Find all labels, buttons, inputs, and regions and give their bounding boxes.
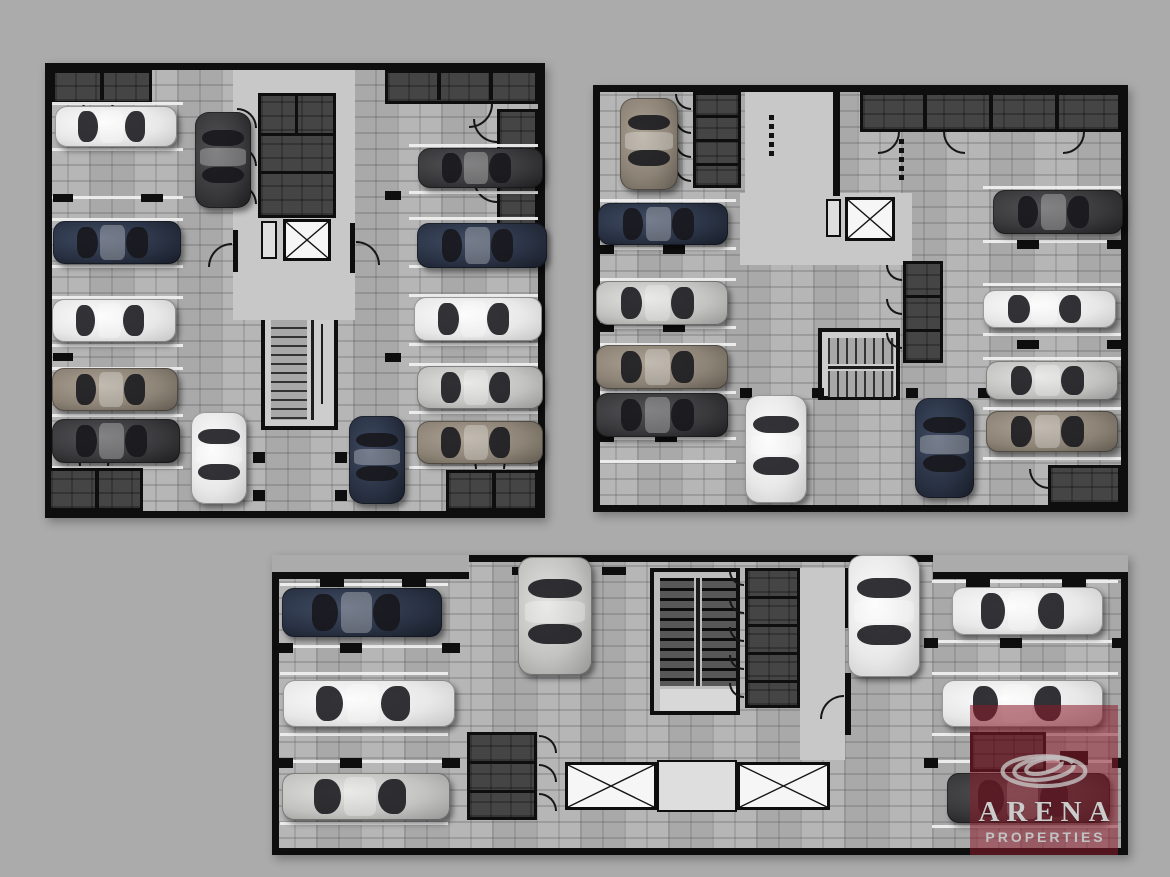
partition-wall	[903, 295, 943, 298]
door-arc	[539, 793, 557, 811]
wall-stub	[442, 643, 460, 653]
door-arc	[1029, 469, 1049, 489]
stall-line	[280, 672, 448, 675]
wall	[845, 673, 851, 735]
car-rear-glass	[1018, 196, 1039, 229]
partition-wall	[467, 790, 537, 793]
car-windshield	[923, 455, 967, 472]
car-rear-glass	[312, 594, 338, 630]
car-roof	[751, 435, 802, 456]
car-rear-glass	[857, 578, 910, 598]
wall-stub	[663, 245, 685, 254]
car-rear-glass	[438, 303, 458, 336]
watermark-title: ARENA	[978, 798, 1116, 827]
car-roof	[464, 152, 488, 185]
car-roof	[465, 227, 490, 264]
elevator-shaft	[261, 221, 277, 259]
stair-landing	[660, 689, 736, 711]
car-windshield	[672, 208, 694, 239]
door-arc	[356, 241, 380, 265]
car-rear-glass	[528, 579, 583, 598]
car-rear-glass	[628, 115, 671, 130]
wall-stub	[1107, 340, 1121, 349]
partition-wall	[1055, 92, 1059, 132]
car-roof	[464, 425, 488, 460]
stall-line	[409, 411, 538, 414]
wall-stub	[1112, 638, 1122, 648]
wall-stub	[966, 579, 990, 587]
car-rear-glass	[621, 351, 642, 384]
wall	[233, 230, 238, 272]
car-rear-glass	[441, 372, 461, 404]
wall-stub	[442, 758, 460, 768]
door-arc	[886, 299, 902, 315]
storage-room	[1048, 465, 1121, 505]
car-white	[983, 290, 1116, 328]
car-windshield	[356, 466, 397, 481]
car-white	[55, 106, 177, 147]
car-navy	[915, 398, 974, 498]
watermark-subtitle: PROPERTIES	[985, 827, 1105, 848]
car-white	[414, 297, 542, 341]
car-windshield	[1038, 593, 1064, 629]
elevator	[283, 219, 331, 261]
stall-line	[983, 283, 1121, 286]
car-rear-glass	[356, 433, 397, 447]
wall	[350, 223, 355, 273]
door-arc	[539, 764, 557, 782]
car-roof	[645, 349, 670, 385]
car-roof	[200, 148, 246, 166]
car-windshield	[378, 779, 407, 814]
wall-stub	[253, 490, 265, 501]
elevator	[845, 197, 895, 241]
car-roof	[645, 285, 670, 321]
car-rear-glass	[441, 427, 461, 459]
wall-stub	[1062, 579, 1086, 587]
partition-wall	[693, 163, 741, 166]
stairwell	[650, 568, 740, 715]
car-windshield	[1059, 295, 1082, 323]
stall-line	[52, 414, 183, 417]
partition-wall	[989, 92, 993, 132]
wall-stub	[1107, 240, 1121, 249]
door-arc	[539, 735, 557, 753]
car-rear-glass	[78, 111, 98, 141]
stall-line	[409, 191, 538, 194]
elevator	[565, 762, 657, 810]
car-rear-glass	[923, 417, 967, 433]
partition-wall	[100, 70, 104, 100]
car-roof	[854, 600, 913, 623]
wall-stub	[402, 579, 426, 587]
car-windshield	[489, 427, 510, 459]
partition-wall	[437, 70, 441, 100]
stall-line	[932, 672, 1118, 675]
wall-stub	[812, 388, 824, 398]
door-arc	[886, 265, 902, 281]
car-charcoal	[596, 393, 728, 437]
stall-line	[600, 460, 736, 463]
car-roof	[99, 423, 123, 459]
stall-line	[409, 217, 538, 220]
car-rear-glass	[76, 425, 96, 458]
stall-line	[600, 199, 736, 202]
elevator-lobby	[657, 760, 737, 812]
car-windshield	[373, 594, 400, 630]
wall-stub	[253, 452, 265, 463]
stair-treads	[828, 338, 894, 364]
plan-top-step	[272, 555, 469, 579]
car-roof	[625, 132, 673, 149]
wall-stub	[340, 758, 362, 768]
car-roof	[1035, 365, 1060, 397]
car-charcoal	[195, 112, 251, 208]
car-navy	[282, 588, 442, 637]
car-roof	[347, 684, 380, 723]
car-roof	[1008, 591, 1037, 630]
car-taupe	[52, 368, 178, 411]
car-roof	[464, 370, 488, 405]
car-rear-glass	[1011, 416, 1032, 446]
partition-wall	[693, 139, 741, 142]
car-windshield	[1061, 416, 1083, 446]
car-windshield	[126, 227, 148, 259]
car-silver	[986, 361, 1118, 400]
car-roof	[461, 301, 485, 337]
car-windshield	[753, 457, 799, 475]
car-silver	[596, 281, 728, 325]
car-roof	[99, 372, 123, 407]
car-rear-glass	[623, 208, 644, 239]
car-windshield	[671, 351, 693, 384]
partition-wall	[745, 596, 800, 599]
car-roof	[100, 110, 123, 144]
car-white	[745, 395, 807, 503]
wall-stub	[1017, 340, 1039, 349]
partition-wall	[745, 652, 800, 655]
car-windshield	[202, 167, 243, 183]
car-navy	[417, 223, 547, 268]
partition-wall	[492, 470, 496, 511]
stall-line	[409, 144, 538, 147]
car-windshield	[487, 303, 509, 336]
stall-line	[932, 580, 1118, 583]
wall-stub	[320, 579, 344, 587]
car-windshield	[123, 305, 144, 337]
car-windshield	[125, 111, 146, 141]
car-white	[52, 299, 176, 342]
car-rear-glass	[198, 429, 239, 444]
stall-line	[280, 760, 448, 763]
partition-wall	[923, 92, 927, 132]
car-white	[952, 587, 1103, 635]
car-rear-glass	[1008, 295, 1029, 323]
car-rear-glass	[76, 374, 96, 406]
car-roof	[354, 449, 400, 466]
car-windshield	[491, 229, 513, 262]
wall-stub	[53, 353, 73, 361]
wall-stub	[141, 194, 163, 202]
car-taupe	[620, 98, 678, 190]
car-windshield	[125, 425, 147, 458]
car-windshield	[1067, 196, 1089, 229]
stall-line	[983, 407, 1121, 410]
car-roof	[920, 435, 968, 454]
car-roof	[341, 592, 371, 632]
wall-stub	[1000, 638, 1022, 648]
car-rear-glass	[316, 686, 344, 721]
car-windshield	[671, 287, 693, 320]
car-taupe	[986, 411, 1118, 452]
car-silver	[282, 773, 450, 820]
wall-stub	[385, 191, 401, 200]
car-rear-glass	[77, 227, 97, 259]
car-windshield	[489, 372, 510, 404]
car-charcoal	[52, 419, 180, 463]
car-rear-glass	[621, 287, 642, 320]
partition-wall	[745, 680, 800, 683]
parking-plan-top-left	[45, 63, 545, 518]
stall-line	[983, 457, 1121, 460]
car-rear-glass	[981, 593, 1005, 629]
car-roof	[645, 397, 670, 433]
partition-wall	[693, 115, 741, 118]
wall-stub	[340, 643, 362, 653]
car-roof	[196, 446, 242, 463]
door-arc	[943, 132, 965, 154]
wall-stub	[279, 758, 293, 768]
car-silver	[417, 366, 543, 409]
wall-stub	[335, 452, 347, 463]
stair-rail	[696, 578, 700, 686]
stall-line	[983, 240, 1121, 243]
stair-treads	[828, 371, 894, 397]
car-rear-glass	[202, 130, 243, 145]
partition-wall	[258, 133, 336, 136]
car-rear-glass	[753, 416, 799, 433]
car-rear-glass	[1011, 366, 1032, 395]
stall-line	[409, 343, 538, 346]
car-rear-glass	[442, 229, 463, 262]
door-arc	[473, 119, 497, 143]
door-arc	[878, 132, 900, 154]
stall-line	[932, 640, 1118, 643]
partition-wall	[745, 624, 800, 627]
stall-line	[280, 822, 448, 825]
partition-wall	[295, 93, 298, 133]
arena-logo-icon	[992, 738, 1096, 796]
partition-wall	[258, 171, 336, 174]
stall-line	[52, 265, 183, 268]
car-rear-glass	[76, 305, 96, 337]
stall-line	[280, 645, 448, 648]
storage-room	[467, 732, 537, 820]
car-charcoal	[993, 190, 1123, 234]
car-roof	[1032, 293, 1057, 324]
wall-stub	[924, 638, 938, 648]
car-windshield	[528, 624, 583, 644]
car-white	[283, 680, 455, 727]
car-roof	[646, 207, 671, 241]
car-windshield	[381, 686, 410, 721]
parking-plan-top-right	[593, 85, 1128, 512]
car-roof	[1041, 194, 1066, 230]
stair-rail	[311, 318, 314, 420]
partition-wall	[467, 761, 537, 764]
floor-plan-canvas: ARENA PROPERTIES	[0, 0, 1170, 877]
wall-stub	[924, 758, 938, 768]
car-charcoal	[418, 148, 543, 188]
car-windshield	[489, 153, 510, 183]
car-roof	[1035, 415, 1060, 449]
watermark-overlay: ARENA PROPERTIES	[970, 705, 1118, 855]
stall-line	[983, 357, 1121, 360]
elevator-shaft	[826, 199, 841, 237]
storage-room	[385, 70, 538, 104]
car-rear-glass	[314, 779, 341, 814]
car-silver	[518, 557, 592, 675]
car-windshield	[198, 464, 239, 480]
door-arc	[1063, 132, 1085, 154]
storage-room	[745, 568, 800, 708]
stair-treads	[660, 578, 694, 686]
stall-line	[983, 333, 1121, 336]
car-navy	[53, 221, 181, 264]
car-roof	[100, 225, 124, 260]
car-windshield	[1061, 366, 1083, 395]
partition-wall	[903, 329, 943, 332]
car-navy	[349, 416, 405, 504]
stairwell	[261, 308, 338, 430]
car-roof	[98, 303, 122, 338]
stair-direction-line	[321, 324, 323, 404]
wall-stub	[335, 490, 347, 501]
stall-line	[52, 102, 183, 105]
car-taupe	[596, 345, 728, 389]
stall-line	[52, 344, 183, 347]
wall-stub	[906, 388, 918, 398]
car-windshield	[628, 150, 671, 166]
stall-line	[52, 148, 183, 151]
wall-stub	[1017, 240, 1039, 249]
car-taupe	[417, 421, 543, 464]
car-rear-glass	[621, 399, 642, 432]
car-white	[848, 555, 920, 677]
stair-rail	[828, 366, 894, 369]
storage-room	[903, 261, 943, 363]
wall	[833, 92, 840, 196]
stall-line	[983, 186, 1121, 189]
partition-wall	[489, 70, 493, 100]
stair-treads	[271, 318, 307, 420]
wall-stub	[600, 245, 614, 254]
car-windshield	[671, 399, 693, 432]
partition-wall	[95, 468, 99, 511]
dashed-wall	[899, 139, 904, 183]
wall-stub	[53, 194, 73, 202]
door-arc	[208, 243, 232, 267]
plan-top-step	[933, 555, 1128, 579]
car-rear-glass	[442, 153, 462, 183]
wall-stub	[602, 567, 626, 575]
car-roof	[525, 601, 586, 623]
car-windshield	[857, 625, 910, 646]
car-roof	[344, 777, 376, 816]
car-navy	[598, 203, 728, 245]
wall-stub	[279, 643, 293, 653]
car-white	[191, 412, 247, 504]
dashed-wall	[769, 115, 774, 159]
car-windshield	[124, 374, 145, 406]
corridor	[800, 568, 845, 760]
stall-line	[280, 733, 448, 736]
wall-stub	[385, 353, 401, 362]
elevator	[737, 762, 830, 810]
